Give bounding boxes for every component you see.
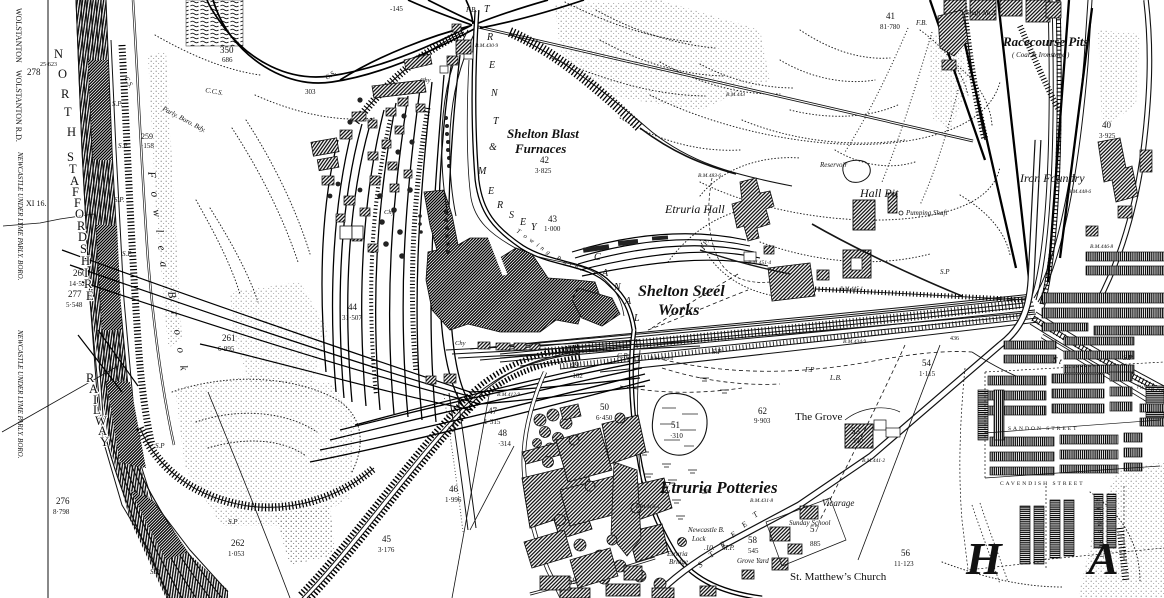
svg-text:S.P.: S.P.: [112, 100, 123, 108]
svg-text:SANDON STREET: SANDON STREET: [1008, 426, 1078, 432]
svg-text:Furnaces: Furnaces: [514, 141, 566, 156]
svg-text:XI 16.: XI 16.: [26, 199, 46, 208]
svg-text:B.M.431·8: B.M.431·8: [750, 497, 773, 504]
svg-text:M: M: [477, 166, 487, 177]
svg-text:Hall Pit: Hall Pit: [859, 186, 899, 200]
svg-text:9·903: 9·903: [754, 417, 771, 425]
svg-text:277: 277: [68, 289, 82, 299]
svg-text:·310: ·310: [670, 432, 683, 440]
svg-text:R: R: [486, 32, 493, 43]
svg-text:L: L: [633, 313, 640, 324]
svg-text:46: 46: [449, 484, 459, 494]
svg-text:436: 436: [950, 336, 959, 342]
svg-text:5·548: 5·548: [66, 301, 83, 309]
svg-text:Reservoir: Reservoir: [819, 161, 847, 169]
svg-text:Grove Yard: Grove Yard: [737, 557, 769, 565]
svg-text:C.R.: C.R.: [617, 352, 630, 360]
svg-text:N: N: [54, 47, 63, 61]
svg-text:Pumping Shaft: Pumping Shaft: [905, 209, 948, 217]
svg-text:Chy: Chy: [420, 77, 431, 84]
svg-text:Bridge: Bridge: [669, 558, 688, 566]
svg-text:350: 350: [220, 45, 234, 55]
svg-text:S.P.: S.P.: [122, 250, 133, 258]
svg-text:Y: Y: [100, 435, 109, 449]
svg-text:51: 51: [671, 420, 680, 430]
svg-text:S.P: S.P: [1123, 354, 1133, 362]
svg-text:C: C: [594, 252, 601, 263]
svg-text:59: 59: [568, 576, 578, 586]
svg-text:The Grove: The Grove: [795, 411, 842, 423]
svg-text:WOLSTANTON R.D.: WOLSTANTON R.D.: [14, 70, 23, 142]
svg-text:L.B.: L.B.: [829, 374, 842, 382]
svg-text:1·115: 1·115: [919, 370, 936, 378]
svg-text:B.M.445·1: B.M.445·1: [840, 285, 863, 292]
svg-text:Shelton Blast: Shelton Blast: [507, 126, 579, 141]
svg-text:·158: ·158: [141, 142, 154, 150]
svg-text:WOLSTANTON: WOLSTANTON: [14, 8, 23, 63]
svg-text:1·315: 1·315: [484, 418, 501, 426]
svg-text:Chy: Chy: [455, 340, 466, 347]
svg-text:H: H: [67, 125, 76, 139]
svg-text:Chy: Chy: [384, 209, 395, 216]
svg-text:S.P: S.P: [155, 442, 165, 450]
svg-text:A: A: [624, 296, 632, 307]
svg-text:Newcastle B.: Newcastle B.: [687, 526, 725, 534]
svg-text:E: E: [519, 217, 526, 228]
svg-text:F.B.: F.B.: [915, 19, 927, 27]
svg-text:B.M.410·4: B.M.410·4: [636, 503, 659, 510]
svg-text:( Coal & Ironstone ): ( Coal & Ironstone ): [1012, 51, 1070, 59]
svg-text:·314: ·314: [498, 440, 511, 448]
svg-text:3·825: 3·825: [535, 167, 552, 175]
svg-text:St. Matthew’s Church: St. Matthew’s Church: [790, 571, 887, 583]
svg-text:O: O: [58, 67, 67, 81]
svg-text:A: A: [601, 268, 609, 279]
svg-text:545: 545: [748, 547, 759, 555]
svg-text:N: N: [613, 282, 622, 293]
svg-text:E: E: [487, 186, 494, 197]
svg-text:B.M.483·6: B.M.483·6: [698, 172, 721, 179]
svg-text:R: R: [61, 87, 70, 101]
svg-text:S.P: S.P: [712, 348, 722, 356]
svg-text:44: 44: [348, 302, 358, 312]
svg-text:Lock: Lock: [691, 535, 707, 543]
svg-text:41: 41: [886, 11, 895, 21]
svg-text:&: &: [489, 142, 497, 153]
svg-text:S.P.: S.P.: [114, 196, 125, 204]
svg-text:25·623: 25·623: [40, 62, 57, 68]
svg-text:42: 42: [540, 155, 549, 165]
svg-text:CAVENDISH STREET: CAVENDISH STREET: [1000, 481, 1085, 487]
svg-text:261: 261: [222, 333, 236, 343]
svg-text:Etruria Hall: Etruria Hall: [664, 202, 725, 216]
svg-text:·162: ·162: [570, 372, 583, 380]
svg-text:Racecourse Pits: Racecourse Pits: [1002, 34, 1089, 49]
svg-text:50: 50: [600, 402, 610, 412]
svg-text:259: 259: [141, 132, 153, 141]
svg-text:Vicarage: Vicarage: [822, 498, 854, 508]
svg-text:S.P: S.P: [940, 268, 950, 276]
svg-text:S: S: [509, 210, 514, 221]
svg-text:B.M.430·9: B.M.430·9: [475, 42, 498, 49]
svg-text:Works: Works: [658, 302, 700, 319]
svg-text:31·507: 31·507: [342, 314, 362, 322]
svg-text:Shaft No.3: Shaft No.3: [966, 9, 996, 17]
svg-text:1·053: 1·053: [228, 550, 245, 558]
svg-text:56: 56: [901, 548, 911, 558]
svg-text:276: 276: [56, 496, 70, 506]
svg-text:E: E: [86, 289, 94, 303]
svg-text:1·996: 1·996: [445, 496, 462, 504]
svg-text:NEWCASTLE UNDER LYME PARLY. BO: NEWCASTLE UNDER LYME PARLY. BORO.: [16, 151, 24, 281]
svg-text:1·000: 1·000: [544, 225, 561, 233]
svg-text:B.M.446·8: B.M.446·8: [1090, 243, 1113, 250]
svg-text:Sunday School: Sunday School: [789, 519, 830, 527]
svg-text:B.M.451·4: B.M.451·4: [748, 259, 771, 266]
svg-text:F.P: F.P: [804, 366, 815, 374]
svg-text:47: 47: [488, 406, 498, 416]
svg-text:-145: -145: [390, 5, 403, 13]
svg-text:45: 45: [382, 534, 392, 544]
svg-text:6·995: 6·995: [218, 345, 235, 353]
svg-text:B.M.412·9: B.M.412·9: [497, 391, 520, 398]
svg-text:49: 49: [570, 360, 580, 370]
svg-text:Iron Foundry: Iron Foundry: [1019, 171, 1085, 185]
svg-text:S.P: S.P: [150, 568, 160, 576]
svg-text:Shelton Steel: Shelton Steel: [638, 283, 725, 300]
svg-text:B.M.441·2: B.M.441·2: [862, 457, 885, 464]
svg-text:11·123: 11·123: [894, 560, 914, 568]
svg-text:262: 262: [231, 538, 245, 548]
svg-text:8·798: 8·798: [53, 508, 70, 516]
svg-text:Etruria Potteries: Etruria Potteries: [659, 478, 778, 497]
svg-text:Etruria: Etruria: [666, 550, 688, 558]
svg-text:278: 278: [27, 67, 41, 77]
svg-text:·370: ·370: [850, 437, 863, 445]
svg-text:S.P: S.P: [228, 518, 238, 526]
svg-text:48: 48: [498, 428, 508, 438]
svg-text:686: 686: [222, 56, 233, 64]
svg-text:3·176: 3·176: [378, 546, 395, 554]
svg-text:S.P.: S.P.: [118, 142, 129, 150]
svg-text:NEWCASTLE UNDER LYME PARLY. BO: NEWCASTLE UNDER LYME PARLY. BORO.: [16, 329, 24, 459]
svg-text:53: 53: [851, 426, 861, 436]
svg-text:303: 303: [305, 88, 316, 96]
svg-text:62: 62: [758, 406, 767, 416]
svg-text:6·450: 6·450: [596, 414, 613, 422]
svg-text:B.M.448·6: B.M.448·6: [1068, 188, 1091, 195]
svg-text:54: 54: [922, 358, 932, 368]
svg-text:F.B.: F.B.: [465, 6, 477, 14]
svg-text:40: 40: [1102, 120, 1112, 130]
svg-text:B.M.414·4: B.M.414·4: [650, 355, 673, 362]
svg-text:43: 43: [548, 214, 558, 224]
svg-text:E: E: [488, 60, 495, 71]
svg-text:885: 885: [810, 540, 821, 548]
svg-text:N: N: [490, 88, 499, 99]
svg-text:B.M.434·9: B.M.434·9: [843, 338, 866, 345]
svg-text:R: R: [496, 200, 503, 211]
svg-text:58: 58: [748, 535, 758, 545]
svg-text:81·780: 81·780: [880, 23, 900, 31]
svg-text:H: H: [965, 533, 1003, 584]
svg-text:B.M.443: B.M.443: [726, 91, 745, 98]
svg-text:T: T: [64, 105, 72, 119]
svg-text:3·925: 3·925: [1099, 132, 1116, 140]
